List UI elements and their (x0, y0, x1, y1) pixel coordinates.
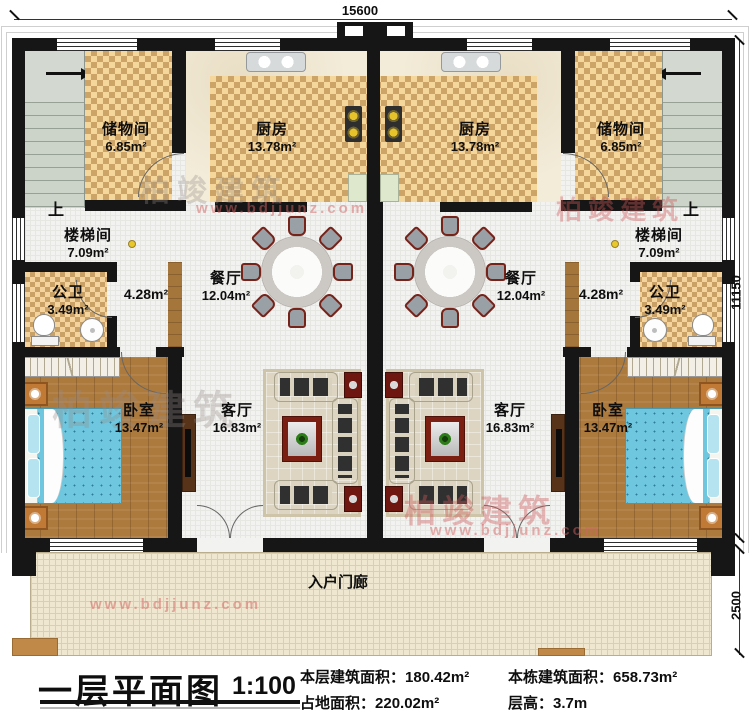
overlay-layer: 柏竣建筑 www.bdjjunz.com 柏竣建筑 柏竣建筑 www.bdjju… (0, 0, 750, 722)
room-name: 储物间 (76, 121, 176, 139)
watermark-url: www.bdjjunz.com (196, 200, 367, 217)
info-floor-height: 层高：3.7m (508, 692, 587, 713)
room-area: 3.49m² (18, 302, 118, 318)
info-label: 本层建筑面积： (300, 669, 405, 686)
label-porch: 入户门廊 (278, 571, 398, 592)
room-name: 客厅 (460, 402, 560, 420)
label-living-left: 客厅 16.83m² (187, 402, 287, 436)
label-storage-right: 储物间 6.85m² (571, 121, 671, 155)
label-kitchen-left: 厨房 13.78m² (222, 121, 322, 155)
room-area: 12.04m² (471, 288, 571, 304)
plan-title: 一层平面图 (38, 664, 223, 713)
label-kitchen-right: 厨房 13.78m² (425, 121, 525, 155)
label-bedroom-left: 卧室 13.47m² (89, 402, 189, 436)
room-name: 客厅 (187, 402, 287, 420)
title-underline (40, 700, 300, 704)
label-up-right: 上 (683, 196, 699, 220)
title-underline-thin (40, 707, 300, 709)
room-area: 13.78m² (425, 139, 525, 155)
info-floor-area: 本层建筑面积：180.42m² (300, 666, 469, 687)
info-value: 658.73m² (613, 669, 677, 686)
room-area: 12.04m² (176, 288, 276, 304)
room-area: 16.83m² (187, 420, 287, 436)
label-bedroom-right: 卧室 13.47m² (558, 402, 658, 436)
info-value: 220.02m² (375, 695, 439, 712)
info-value: 180.42m² (405, 669, 469, 686)
info-label: 占地面积： (300, 695, 375, 712)
label-storage-left: 储物间 6.85m² (76, 121, 176, 155)
room-name: 储物间 (571, 121, 671, 139)
room-name: 楼梯间 (609, 227, 709, 245)
room-area: 7.09m² (609, 245, 709, 261)
label-up-left: 上 (48, 196, 64, 220)
dim-top-value: 15600 (330, 3, 390, 18)
room-name: 楼梯间 (38, 227, 138, 245)
room-name: 餐厅 (176, 270, 276, 288)
info-land-area: 占地面积：220.02m² (300, 692, 439, 713)
label-stairwell-right: 楼梯间 7.09m² (609, 227, 709, 261)
room-area: 6.85m² (571, 139, 671, 155)
watermark-url: www.bdjjunz.com (90, 596, 261, 613)
watermark-brand: 柏竣建筑 (556, 190, 684, 227)
watermark-url: www.bdjjunz.com (430, 522, 601, 539)
label-living-right: 客厅 16.83m² (460, 402, 560, 436)
dim-side-value: 11150 (729, 263, 744, 323)
room-area: 3.49m² (615, 302, 715, 318)
room-name: 卧室 (89, 402, 189, 420)
dim-porch-value: 2500 (729, 576, 744, 636)
room-name: 卧室 (558, 402, 658, 420)
label-dining-left: 餐厅 12.04m² (176, 270, 276, 304)
label-stairwell-left: 楼梯间 7.09m² (38, 227, 138, 261)
info-label: 层高： (508, 695, 553, 712)
room-name: 厨房 (425, 121, 525, 139)
room-area: 13.47m² (558, 420, 658, 436)
room-area: 13.78m² (222, 139, 322, 155)
info-total-area: 本栋建筑面积：658.73m² (508, 666, 677, 687)
room-area: 6.85m² (76, 139, 176, 155)
room-area: 16.83m² (460, 420, 560, 436)
label-dining-right: 餐厅 12.04m² (471, 270, 571, 304)
plan-scale: 1:100 (232, 672, 296, 701)
room-name: 餐厅 (471, 270, 571, 288)
room-area: 13.47m² (89, 420, 189, 436)
info-value: 3.7m (553, 695, 587, 712)
room-name: 厨房 (222, 121, 322, 139)
info-label: 本栋建筑面积： (508, 669, 613, 686)
floor-plan: 柏竣建筑 www.bdjjunz.com 柏竣建筑 柏竣建筑 www.bdjju… (0, 0, 750, 722)
room-area: 7.09m² (38, 245, 138, 261)
